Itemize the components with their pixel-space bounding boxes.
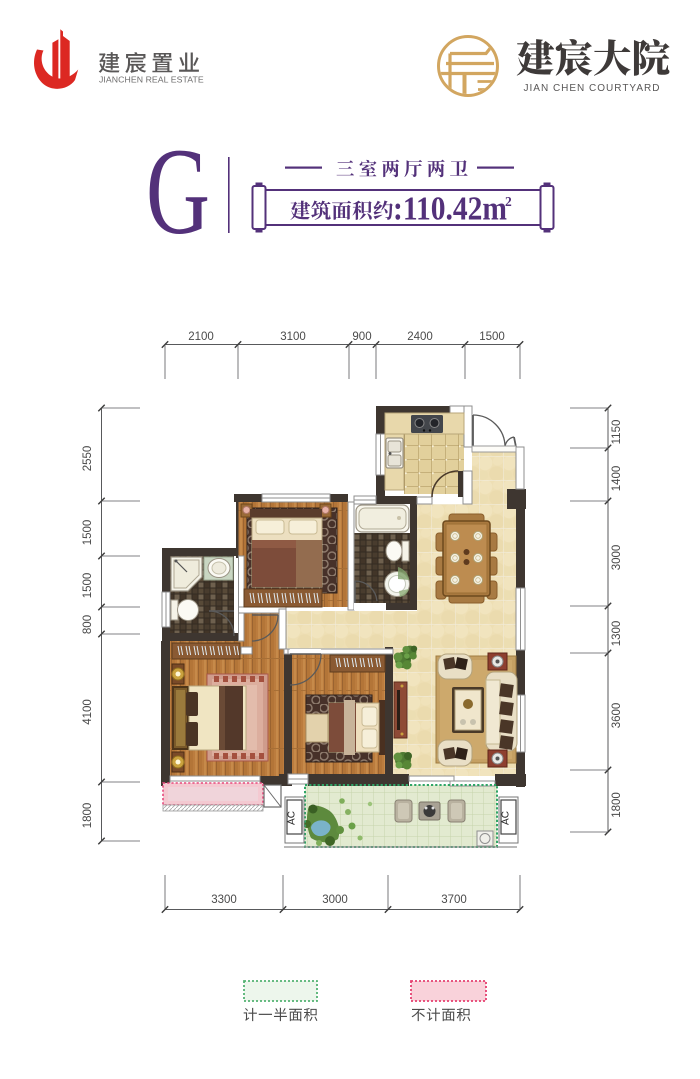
svg-text:1300: 1300	[611, 621, 623, 647]
svg-text:3600: 3600	[611, 703, 623, 729]
svg-text:JIANCHEN REAL ESTATE: JIANCHEN REAL ESTATE	[99, 75, 204, 85]
svg-text:3000: 3000	[322, 894, 348, 906]
svg-text:3700: 3700	[441, 894, 467, 906]
svg-text:1400: 1400	[611, 466, 623, 492]
svg-text:1500: 1500	[82, 573, 94, 599]
svg-text:3000: 3000	[611, 545, 623, 571]
svg-text:1800: 1800	[611, 792, 623, 818]
svg-text:900: 900	[352, 331, 371, 343]
svg-text:2550: 2550	[82, 446, 94, 472]
svg-text:1150: 1150	[611, 420, 623, 445]
svg-text::110.42m: :110.42m	[393, 191, 507, 228]
svg-text:2: 2	[505, 194, 512, 209]
svg-text:2100: 2100	[188, 331, 214, 343]
svg-text:AC: AC	[287, 811, 298, 825]
svg-text:JIAN CHEN COURTYARD: JIAN CHEN COURTYARD	[524, 83, 661, 94]
svg-text:2400: 2400	[407, 331, 433, 343]
svg-text:1800: 1800	[82, 803, 94, 829]
svg-text:3100: 3100	[280, 331, 306, 343]
svg-text:AC: AC	[501, 811, 512, 825]
svg-text:3300: 3300	[211, 894, 237, 906]
svg-text:1500: 1500	[479, 331, 505, 343]
svg-text:4100: 4100	[82, 699, 94, 725]
svg-text:1500: 1500	[82, 520, 94, 546]
svg-text:800: 800	[82, 615, 94, 634]
svg-text:G: G	[146, 123, 210, 260]
